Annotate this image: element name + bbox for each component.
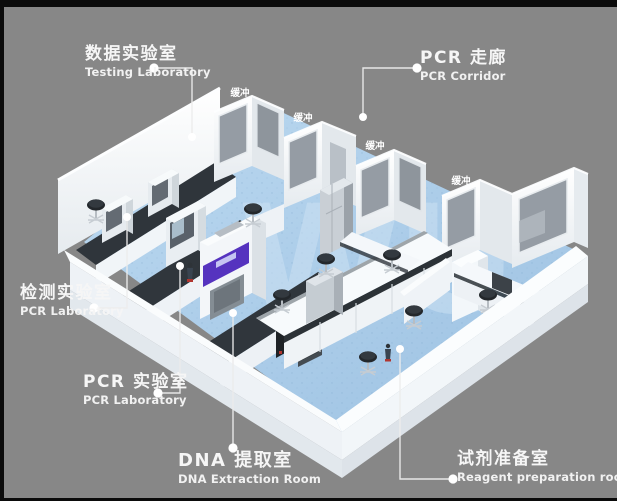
leader-pcr-corridor: [363, 68, 417, 117]
callout-en-label: DNA Extraction Room: [178, 473, 321, 486]
callout-en-label: Testing Laboratory: [85, 66, 211, 79]
callout-pcr-laboratory: PCR 实验室 PCR Laboratory: [83, 373, 188, 407]
isometric-lab-model: WU: [58, 87, 588, 478]
buffer-tag: 缓冲: [365, 140, 385, 152]
callout-en-label: PCR Laboratory: [83, 394, 188, 407]
callout-zh-label: 检测实验室: [20, 284, 124, 304]
callout-en-label: PCR Corridor: [420, 70, 507, 83]
buffer-tag: 缓冲: [230, 87, 250, 99]
callout-en-label: Reagent preparation room: [457, 471, 617, 484]
callout-zh-label: PCR 实验室: [83, 373, 188, 393]
image-border-left: [0, 0, 4, 501]
human-figure: [385, 344, 391, 362]
callout-dna-extraction-room: DNA 提取室 DNA Extraction Room: [178, 451, 321, 486]
callout-en-label: PCR Laboratory: [20, 305, 124, 318]
callout-zh-label: 数据实验室: [85, 45, 211, 65]
callout-zh-label: 试剂准备室: [457, 450, 617, 470]
callout-testing-laboratory: 数据实验室 Testing Laboratory: [85, 45, 211, 79]
callout-zh-label: PCR 走廊: [420, 49, 507, 69]
callout-zh-label: DNA 提取室: [178, 451, 321, 472]
callout-pcr-corridor: PCR 走廊 PCR Corridor: [420, 49, 507, 83]
lab-floorplan-illustration: WU: [0, 0, 617, 501]
callout-reagent-preparation-room: 试剂准备室 Reagent preparation room: [457, 450, 617, 484]
human-figure: [187, 263, 193, 282]
buffer-tag: 缓冲: [451, 175, 471, 187]
image-border-top: [0, 0, 617, 7]
callout-detection-laboratory: 检测实验室 PCR Laboratory: [20, 284, 124, 318]
buffer-tag: 缓冲: [293, 112, 313, 124]
